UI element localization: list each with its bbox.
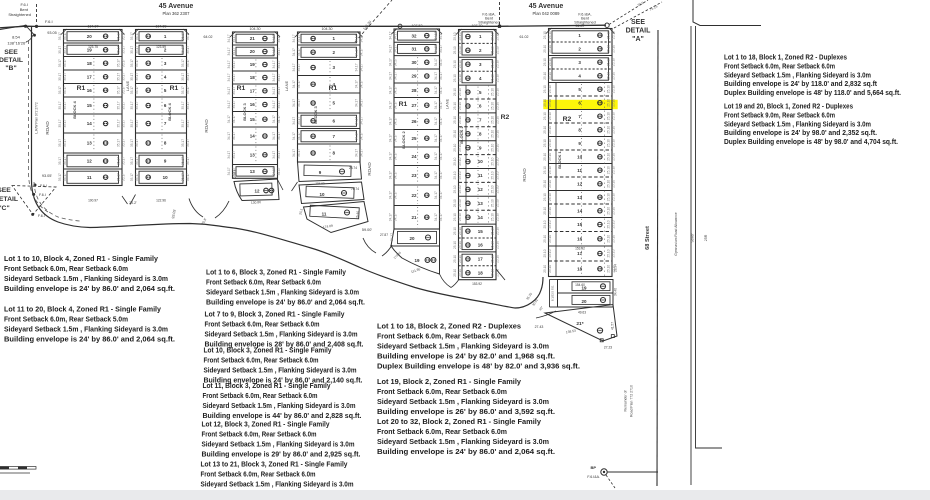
svg-text:35.17: 35.17: [181, 46, 185, 54]
svg-text:34.17: 34.17: [227, 167, 231, 175]
svg-text:30: 30: [411, 60, 417, 65]
svg-text:25.10: 25.10: [548, 153, 552, 161]
svg-text:34.17: 34.17: [394, 58, 398, 66]
svg-text:Sideyard Setback 1.5m , Flanki: Sideyard Setback 1.5m , Flanking Sideyar…: [4, 327, 168, 334]
svg-text:34.17: 34.17: [272, 151, 276, 159]
svg-text:SEE: SEE: [631, 19, 645, 26]
svg-text:25.10: 25.10: [458, 74, 462, 82]
svg-text:35.17: 35.17: [181, 32, 185, 40]
svg-text:34.17: 34.17: [389, 171, 393, 179]
svg-text:34.17: 34.17: [292, 99, 296, 107]
svg-text:Building envelope is 29' by 86: Building envelope is 29' by 86.0' and 2,…: [202, 452, 361, 459]
svg-text:35.17: 35.17: [130, 86, 134, 94]
svg-text:138°16'26": 138°16'26": [7, 41, 27, 46]
svg-text:35.17: 35.17: [130, 73, 134, 81]
svg-text:13: 13: [250, 152, 256, 157]
svg-text:35.17: 35.17: [63, 173, 67, 181]
svg-text:25.10: 25.10: [548, 112, 552, 120]
svg-text:15: 15: [250, 117, 256, 122]
svg-text:25.10: 25.10: [496, 32, 500, 40]
svg-text:20: 20: [87, 34, 93, 39]
svg-text:25.10: 25.10: [607, 235, 611, 243]
svg-text:Building envelope is 26' by 86: Building envelope is 26' by 86.0' and 3,…: [377, 409, 555, 416]
svg-text:25.10: 25.10: [491, 60, 495, 68]
svg-text:35.17: 35.17: [135, 101, 139, 109]
svg-text:25.10: 25.10: [491, 130, 495, 138]
svg-text:25.10: 25.10: [543, 220, 547, 228]
svg-text:35.17: 35.17: [63, 157, 67, 165]
svg-text:34.17: 34.17: [232, 115, 236, 123]
svg-text:153.92: 153.92: [575, 247, 585, 251]
svg-text:35.17: 35.17: [181, 59, 185, 67]
svg-text:Front Setback 6.0m, Rear Setba: Front Setback 6.0m, Rear Setback 6.0m: [4, 266, 128, 273]
svg-text:16: 16: [478, 243, 484, 248]
svg-text:20: 20: [409, 236, 415, 241]
svg-text:34.17: 34.17: [439, 101, 443, 109]
svg-text:25.10: 25.10: [453, 157, 457, 165]
svg-text:15: 15: [478, 229, 484, 234]
svg-text:34.17: 34.17: [355, 80, 359, 88]
svg-text:35.17: 35.17: [181, 86, 185, 94]
svg-text:25.10: 25.10: [491, 185, 495, 193]
svg-text:25.10: 25.10: [453, 227, 457, 235]
svg-text:34.17: 34.17: [227, 151, 231, 159]
svg-text:28: 28: [411, 88, 417, 93]
svg-text:25.10: 25.10: [612, 99, 616, 107]
svg-text:25.10: 25.10: [453, 171, 457, 179]
svg-text:Sideyard Setback 1.5m , Flanki: Sideyard Setback 1.5m , Flanking Sideyar…: [205, 332, 358, 339]
svg-text:153.92: 153.92: [472, 282, 482, 286]
svg-text:34.17: 34.17: [360, 80, 364, 88]
svg-text:34.17: 34.17: [227, 87, 231, 95]
svg-text:35.17: 35.17: [181, 157, 185, 165]
svg-text:10: 10: [319, 192, 325, 197]
svg-text:35.17: 35.17: [117, 119, 121, 127]
svg-text:34.17: 34.17: [277, 115, 281, 123]
svg-text:34.17: 34.17: [227, 73, 231, 81]
svg-text:Sideyard Setback 1.5m , Flanki: Sideyard Setback 1.5m , Flanking Sideyar…: [201, 482, 354, 489]
svg-text:Gymnasium Road Allowance: Gymnasium Road Allowance: [674, 212, 678, 255]
svg-text:25.10: 25.10: [496, 74, 500, 82]
svg-text:122.96: 122.96: [156, 199, 166, 203]
svg-text:35.17: 35.17: [130, 32, 134, 40]
svg-text:34.17: 34.17: [434, 117, 438, 125]
svg-text:17: 17: [478, 257, 484, 262]
svg-text:35.17: 35.17: [181, 73, 185, 81]
svg-text:25.10: 25.10: [458, 116, 462, 124]
svg-text:31.87: 31.87: [576, 24, 585, 28]
svg-text:34.17: 34.17: [355, 117, 359, 125]
svg-text:34.17: 34.17: [232, 47, 236, 55]
svg-text:11: 11: [577, 168, 582, 173]
svg-text:DETAIL: DETAIL: [0, 196, 18, 203]
svg-text:34.17: 34.17: [439, 31, 443, 39]
svg-text:34.40: 34.40: [614, 288, 618, 296]
svg-text:25.10: 25.10: [543, 126, 547, 134]
svg-text:Front Setback 6.0m, Rear Setba: Front Setback 6.0m, Rear Setback 6.0m: [203, 393, 318, 400]
svg-text:21*: 21*: [576, 321, 583, 327]
svg-text:35.17: 35.17: [186, 59, 190, 67]
svg-text:25.10: 25.10: [612, 112, 616, 120]
svg-text:34.17: 34.17: [439, 152, 443, 160]
svg-text:35.17: 35.17: [122, 59, 126, 67]
svg-text:34.17: 34.17: [272, 47, 276, 55]
svg-text:21: 21: [411, 215, 417, 220]
svg-text:34.17: 34.17: [227, 115, 231, 123]
svg-text:"B": "B": [5, 65, 16, 72]
svg-text:23.61: 23.61: [233, 170, 237, 178]
svg-text:25.10: 25.10: [496, 185, 500, 193]
svg-text:25.10: 25.10: [491, 255, 495, 263]
svg-text:34.17: 34.17: [292, 80, 296, 88]
svg-text:34.17: 34.17: [232, 34, 236, 42]
svg-text:25.10: 25.10: [612, 139, 616, 147]
svg-text:34.17: 34.17: [394, 213, 398, 221]
svg-text:35.17: 35.17: [58, 157, 62, 165]
svg-text:34.17: 34.17: [272, 60, 276, 68]
svg-text:25.10: 25.10: [458, 185, 462, 193]
svg-text:35.17: 35.17: [117, 173, 121, 181]
svg-text:34.17: 34.17: [389, 213, 393, 221]
svg-text:34.17: 34.17: [227, 34, 231, 42]
svg-text:25.10: 25.10: [453, 74, 457, 82]
svg-text:25.10: 25.10: [491, 116, 495, 124]
svg-text:35.17: 35.17: [130, 157, 134, 165]
svg-text:35.17: 35.17: [122, 157, 126, 165]
svg-text:25.10: 25.10: [543, 31, 547, 39]
svg-text:8.1/23.5 S.E.: 8.1/23.5 S.E.: [551, 285, 555, 301]
svg-text:25.10: 25.10: [491, 143, 495, 151]
svg-text:25.10: 25.10: [453, 32, 457, 40]
svg-text:34.17: 34.17: [292, 132, 296, 140]
svg-text:35.17: 35.17: [63, 59, 67, 67]
svg-text:34.17: 34.17: [355, 99, 359, 107]
svg-text:13: 13: [478, 201, 484, 206]
svg-text:BLOCK 1: BLOCK 1: [557, 150, 562, 168]
svg-text:25.10: 25.10: [496, 143, 500, 151]
svg-text:BLOCK 2: BLOCK 2: [401, 130, 406, 148]
svg-text:34.17: 34.17: [277, 87, 281, 95]
svg-text:35.17: 35.17: [135, 173, 139, 181]
svg-text:34.17: 34.17: [434, 45, 438, 53]
svg-text:35.17: 35.17: [58, 173, 62, 181]
svg-text:L.R/W Plan 972 2772: L.R/W Plan 972 2772: [35, 102, 39, 134]
svg-text:35.17: 35.17: [186, 46, 190, 54]
svg-text:Front Setback 6.0m, Rear Setba: Front Setback 6.0m, Rear Setback 6.0m: [204, 358, 319, 365]
svg-text:35.17: 35.17: [135, 157, 139, 165]
svg-text:34.17: 34.17: [272, 34, 276, 42]
svg-text:130.86: 130.86: [251, 200, 262, 205]
svg-text:25.10: 25.10: [491, 199, 495, 207]
svg-text:17: 17: [87, 75, 93, 80]
svg-text:25.10: 25.10: [496, 213, 500, 221]
svg-text:Duplex Building envelope is 48: Duplex Building envelope is 48' by 82.0'…: [377, 364, 580, 371]
svg-text:Sideyard Setback 1.5m , Flanki: Sideyard Setback 1.5m , Flanking Sideyar…: [377, 344, 549, 351]
svg-text:34.17: 34.17: [272, 167, 276, 175]
svg-text:35.17: 35.17: [58, 101, 62, 109]
svg-text:R1: R1: [399, 101, 408, 108]
svg-text:12: 12: [87, 159, 93, 164]
svg-text:25.10: 25.10: [607, 85, 611, 93]
svg-text:Front Setback 6.0m, Rear Setba: Front Setback 6.0m, Rear Setback 6.0m: [724, 63, 835, 70]
svg-text:93.05': 93.05': [42, 174, 53, 178]
svg-text:14: 14: [250, 134, 256, 139]
svg-text:25.10: 25.10: [458, 227, 462, 235]
svg-text:25.10: 25.10: [491, 32, 495, 40]
svg-text:Lot 1 to 6, Block 3, Zoned R1: Lot 1 to 6, Block 3, Zoned R1 - Single F…: [206, 270, 346, 277]
svg-text:25.10: 25.10: [491, 74, 495, 82]
svg-text:34.17: 34.17: [272, 132, 276, 140]
svg-text:LANE: LANE: [445, 98, 450, 109]
svg-text:Lot 12, Block 3, Zoned R1 - Si: Lot 12, Block 3, Zoned R1 - Single Famil…: [202, 422, 330, 429]
svg-text:34.17: 34.17: [389, 86, 393, 94]
svg-text:35.17: 35.17: [181, 139, 185, 147]
svg-text:25.10: 25.10: [491, 241, 495, 249]
svg-text:34.17: 34.17: [232, 100, 236, 108]
svg-text:93.05: 93.05: [47, 31, 57, 35]
svg-text:34.17: 34.17: [360, 132, 364, 140]
svg-text:34.17: 34.17: [389, 45, 393, 53]
svg-text:34.17: 34.17: [355, 132, 359, 140]
svg-text:Front Setback 9.0m, Rear Setba: Front Setback 9.0m, Rear Setback 6.0m: [724, 112, 835, 119]
svg-text:11: 11: [322, 212, 327, 217]
svg-text:25.10: 25.10: [496, 88, 500, 96]
svg-text:34.17: 34.17: [227, 47, 231, 55]
svg-text:Lot 20 to 32, Block 2, Zoned R: Lot 20 to 32, Block 2, Zoned R1 - Single…: [377, 419, 541, 426]
svg-text:34.17: 34.17: [297, 48, 301, 56]
svg-text:34.17: 34.17: [394, 171, 398, 179]
svg-text:35.17: 35.17: [58, 73, 62, 81]
svg-text:27.23: 27.23: [604, 346, 612, 350]
svg-text:29: 29: [411, 74, 417, 79]
svg-text:Lot 13 to 21, Block 3, Zoned R: Lot 13 to 21, Block 3, Zoned R1 - Single…: [201, 462, 348, 469]
svg-text:34.17: 34.17: [277, 167, 281, 175]
svg-text:35.17: 35.17: [135, 86, 139, 94]
svg-text:34.17: 34.17: [439, 45, 443, 53]
svg-text:10: 10: [577, 154, 583, 159]
svg-text:25.10: 25.10: [543, 112, 547, 120]
svg-text:Building envelope is 24' by 82: Building envelope is 24' by 82.0' and 1,…: [377, 354, 555, 361]
svg-text:35.17: 35.17: [63, 46, 67, 54]
svg-text:DETAIL: DETAIL: [0, 57, 23, 64]
svg-text:35.17: 35.17: [122, 139, 126, 147]
svg-text:34.17: 34.17: [394, 134, 398, 142]
svg-text:34.17: 34.17: [434, 191, 438, 199]
svg-text:25.10: 25.10: [491, 171, 495, 179]
svg-text:25.10: 25.10: [543, 235, 547, 243]
svg-text:25.10: 25.10: [491, 157, 495, 165]
svg-text:25.10: 25.10: [453, 269, 457, 277]
svg-text:34.17: 34.17: [227, 100, 231, 108]
svg-text:Sideyard Setback 1.5m , Flanki: Sideyard Setback 1.5m , Flanking Sideyar…: [377, 399, 549, 406]
svg-text:Remainder of: Remainder of: [624, 390, 628, 411]
svg-text:25.10: 25.10: [491, 88, 495, 96]
svg-text:28.94: 28.94: [614, 264, 618, 272]
svg-text:BLOCK 4: BLOCK 4: [72, 100, 77, 118]
svg-text:23: 23: [411, 173, 417, 178]
svg-text:34.17: 34.17: [297, 117, 301, 125]
svg-text:35.17: 35.17: [63, 32, 67, 40]
svg-text:19: 19: [581, 286, 587, 291]
svg-text:34.17: 34.17: [434, 86, 438, 94]
svg-text:25.10: 25.10: [491, 102, 495, 110]
svg-text:35.17: 35.17: [122, 46, 126, 54]
svg-text:25.10: 25.10: [543, 166, 547, 174]
svg-text:34.17: 34.17: [297, 149, 301, 157]
svg-text:25.10: 25.10: [543, 58, 547, 66]
svg-text:100.97: 100.97: [88, 199, 98, 203]
svg-text:25.10: 25.10: [612, 45, 616, 53]
svg-text:25.10: 25.10: [453, 116, 457, 124]
svg-text:34.17: 34.17: [277, 60, 281, 68]
svg-text:25.10: 25.10: [548, 72, 552, 80]
svg-text:25.10: 25.10: [607, 220, 611, 228]
svg-text:34.17: 34.17: [389, 101, 393, 109]
svg-text:34.17: 34.17: [434, 152, 438, 160]
svg-text:34.17: 34.17: [277, 132, 281, 140]
svg-text:35.17: 35.17: [135, 119, 139, 127]
svg-text:Sideyard Setback 1.5m , Flanki: Sideyard Setback 1.5m , Flanking Sideyar…: [724, 72, 871, 79]
svg-text:R1: R1: [237, 85, 246, 92]
svg-text:35.17: 35.17: [135, 73, 139, 81]
svg-text:25.10: 25.10: [548, 85, 552, 93]
svg-text:35.17: 35.17: [186, 86, 190, 94]
svg-text:34.17: 34.17: [232, 87, 236, 95]
svg-text:25.10: 25.10: [607, 126, 611, 134]
svg-text:64.02: 64.02: [204, 35, 213, 39]
svg-text:34.17: 34.17: [434, 171, 438, 179]
svg-text:104.09: 104.09: [156, 25, 167, 29]
svg-text:12: 12: [254, 189, 260, 194]
svg-text:ROAD: ROAD: [204, 119, 209, 133]
svg-text:35.17: 35.17: [130, 59, 134, 67]
svg-text:25.10: 25.10: [543, 153, 547, 161]
svg-text:78.74: 78.74: [351, 187, 359, 191]
svg-text:25.10: 25.10: [607, 180, 611, 188]
svg-text:34.17: 34.17: [355, 48, 359, 56]
svg-text:Front Setback 6.0m, Rear Setba: Front Setback 6.0m, Rear Setback 6.0m: [377, 389, 507, 396]
svg-text:16: 16: [577, 236, 583, 241]
svg-text:34.17: 34.17: [394, 31, 398, 39]
svg-text:123.59: 123.59: [156, 45, 166, 49]
svg-text:25.10: 25.10: [458, 269, 462, 277]
svg-text:35.17: 35.17: [58, 59, 62, 67]
svg-text:34.17: 34.17: [389, 117, 393, 125]
svg-text:25.10: 25.10: [607, 166, 611, 174]
svg-text:27.43: 27.43: [535, 325, 544, 329]
svg-text:R2: R2: [563, 116, 572, 123]
svg-text:34.17: 34.17: [297, 132, 301, 140]
svg-text:19: 19: [250, 62, 256, 67]
svg-text:20: 20: [581, 299, 587, 304]
svg-text:22: 22: [411, 193, 417, 198]
svg-text:25.10: 25.10: [453, 130, 457, 138]
svg-text:35.17: 35.17: [117, 157, 121, 165]
svg-text:21: 21: [250, 36, 256, 41]
svg-text:Sideyard Setback 1.5m , Flanki: Sideyard Setback 1.5m , Flanking Sideyar…: [202, 442, 355, 449]
svg-text:34.17: 34.17: [360, 63, 364, 71]
svg-text:Sideyard Setback 1.5m , Flanki: Sideyard Setback 1.5m , Flanking Sideyar…: [206, 290, 359, 297]
svg-text:34.17: 34.17: [272, 73, 276, 81]
svg-text:35.17: 35.17: [122, 32, 126, 40]
svg-text:25.10: 25.10: [548, 220, 552, 228]
svg-text:25.10: 25.10: [453, 46, 457, 54]
svg-text:34.17: 34.17: [394, 191, 398, 199]
svg-text:35.17: 35.17: [135, 139, 139, 147]
svg-text:Straightened: Straightened: [8, 12, 31, 17]
svg-text:25.10: 25.10: [548, 99, 552, 107]
svg-text:LANE: LANE: [284, 80, 289, 91]
svg-text:25R: 25R: [704, 234, 708, 241]
svg-text:Plan 042 0089: Plan 042 0089: [532, 11, 560, 16]
svg-text:R1: R1: [77, 85, 86, 92]
svg-text:35.17: 35.17: [135, 32, 139, 40]
svg-text:34.17: 34.17: [439, 86, 443, 94]
svg-text:25.10: 25.10: [491, 46, 495, 54]
svg-text:BLOCK 3: BLOCK 3: [242, 102, 247, 120]
svg-text:18: 18: [250, 75, 256, 80]
svg-text:34.17: 34.17: [297, 99, 301, 107]
svg-text:17: 17: [250, 89, 256, 94]
svg-text:35.17: 35.17: [181, 173, 185, 181]
svg-text:14: 14: [577, 208, 583, 213]
svg-text:25.10: 25.10: [458, 241, 462, 249]
svg-text:14: 14: [87, 121, 93, 126]
svg-text:104.07: 104.07: [88, 25, 99, 29]
svg-text:34.17: 34.17: [439, 191, 443, 199]
svg-text:Building envelope is 44' by 86: Building envelope is 44' by 86.0' and 2,…: [203, 413, 362, 420]
svg-text:25.10: 25.10: [453, 60, 457, 68]
svg-text:25.10: 25.10: [543, 99, 547, 107]
svg-text:"C": "C": [0, 205, 10, 212]
svg-text:25.10: 25.10: [548, 265, 552, 273]
svg-text:25.10: 25.10: [543, 207, 547, 215]
svg-text:Building envelope is 24' by 98: Building envelope is 24' by 98.0' and 2,…: [724, 130, 877, 137]
svg-text:BP: BP: [590, 465, 596, 470]
svg-text:49.63: 49.63: [578, 311, 586, 315]
svg-text:25.10: 25.10: [548, 193, 552, 201]
svg-text:34.17: 34.17: [360, 34, 364, 42]
svg-text:13: 13: [250, 169, 256, 174]
svg-text:Sideyard Setback 1.5m , Flanki: Sideyard Setback 1.5m , Flanking Sideyar…: [4, 276, 168, 283]
svg-text:35.17: 35.17: [58, 46, 62, 54]
svg-text:DETAIL: DETAIL: [626, 28, 651, 35]
svg-text:34.17: 34.17: [232, 151, 236, 159]
svg-text:25.10: 25.10: [453, 199, 457, 207]
svg-text:25.10: 25.10: [612, 166, 616, 174]
svg-text:25.10: 25.10: [543, 265, 547, 273]
svg-text:25.10: 25.10: [496, 60, 500, 68]
svg-text:34.17: 34.17: [389, 191, 393, 199]
svg-text:35.17: 35.17: [186, 101, 190, 109]
svg-text:13: 13: [87, 141, 93, 146]
svg-text:35.17: 35.17: [117, 101, 121, 109]
svg-text:35.17: 35.17: [58, 119, 62, 127]
svg-text:34.17: 34.17: [355, 63, 359, 71]
svg-text:34.17: 34.17: [434, 101, 438, 109]
svg-text:34.17: 34.17: [297, 63, 301, 71]
svg-text:Front Setback 6.0m, Rear Setba: Front Setback 6.0m, Rear Setback 6.0m: [205, 322, 320, 329]
svg-text:Sewer: Sewer: [691, 233, 695, 243]
svg-text:F.6.I: F.6.I: [39, 193, 46, 197]
svg-text:34.17: 34.17: [277, 100, 281, 108]
svg-text:35.17: 35.17: [130, 46, 134, 54]
svg-text:25.10: 25.10: [496, 157, 500, 165]
svg-text:25.10: 25.10: [607, 31, 611, 39]
svg-text:26: 26: [411, 119, 417, 124]
svg-text:35.17: 35.17: [117, 86, 121, 94]
svg-text:34.17: 34.17: [227, 60, 231, 68]
